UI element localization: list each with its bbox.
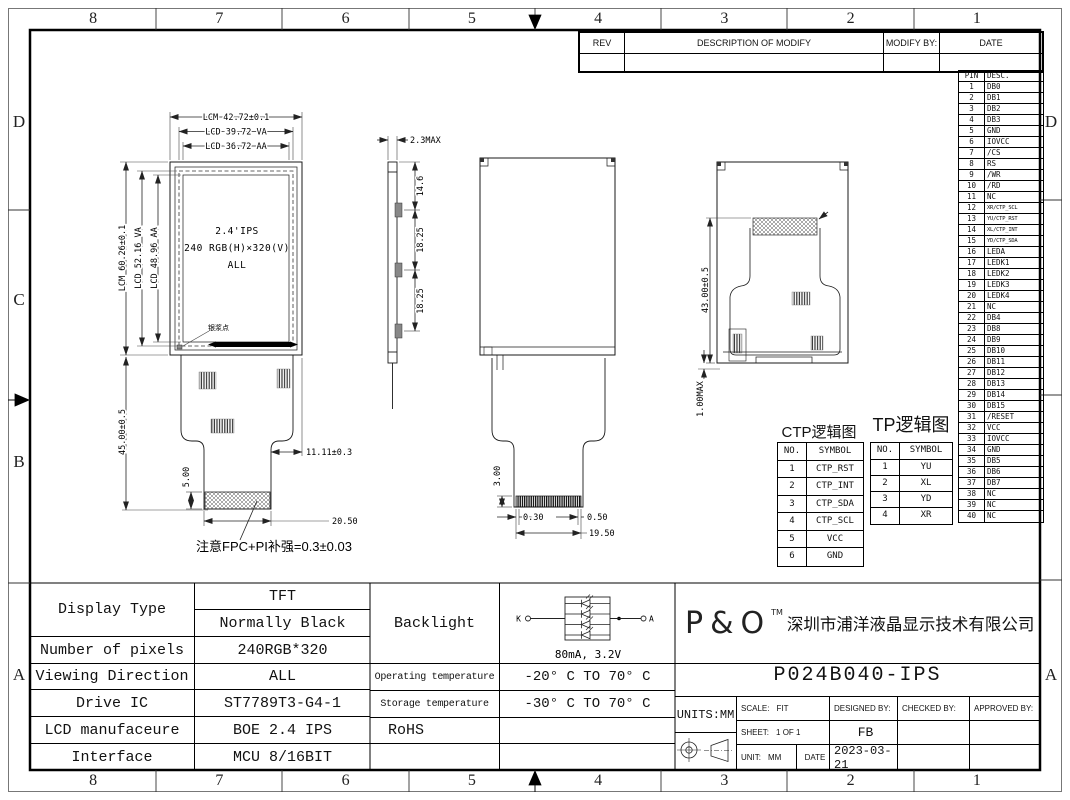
pin-number: 26 bbox=[959, 357, 985, 367]
ctp-no: 2 bbox=[778, 478, 807, 495]
backlight-circuit-cell bbox=[500, 583, 675, 664]
panel-size-label: 2.4'IPS bbox=[215, 226, 259, 237]
pin-row: 6 IOVCC bbox=[959, 137, 1043, 148]
tp-no-header: NO. bbox=[871, 443, 900, 459]
env-empty-label bbox=[370, 744, 500, 770]
pin-desc: GND bbox=[985, 445, 1043, 455]
pin-desc: LEDK1 bbox=[985, 258, 1043, 268]
component-5 bbox=[733, 334, 742, 353]
pin-number: 9 bbox=[959, 170, 985, 180]
pin-number: 20 bbox=[959, 291, 985, 301]
column-number: 2 bbox=[788, 770, 914, 792]
pin-row: 10 /RD bbox=[959, 181, 1043, 192]
pin-row: 31 /RESET bbox=[959, 412, 1043, 423]
column-band-top: 87654321 bbox=[30, 8, 1040, 30]
drive-ic-value: ST7789T3-G4-1 bbox=[195, 690, 370, 717]
manufacture-value: BOE 2.4 IPS bbox=[195, 717, 370, 744]
pin-number: 25 bbox=[959, 346, 985, 356]
engineering-drawing-sheet: { "sheet_border": { "columns": ["8","7",… bbox=[0, 0, 1070, 800]
pin-number: 19 bbox=[959, 280, 985, 290]
ctp-row: 3 CTP_SDA bbox=[778, 496, 863, 514]
manufacture-label: LCD manufaceure bbox=[30, 717, 195, 744]
pin-number: 30 bbox=[959, 401, 985, 411]
pin-desc: DB3 bbox=[985, 115, 1043, 125]
tp-symbol: XL bbox=[900, 476, 952, 491]
pin-row: 23 DB8 bbox=[959, 324, 1043, 335]
tp-no: 1 bbox=[871, 460, 900, 475]
dim-va-height: LCD 52.16 VA bbox=[134, 227, 144, 288]
pin-desc: LEDK2 bbox=[985, 269, 1043, 279]
env-empty-value bbox=[500, 744, 675, 770]
rohs-value-empty bbox=[500, 718, 675, 744]
pin-desc: YD/CTP_SDA bbox=[985, 236, 1043, 246]
column-number: 4 bbox=[535, 8, 661, 30]
modify-by-empty bbox=[884, 54, 940, 71]
pin-desc: IOVCC bbox=[985, 137, 1043, 147]
tp-header-row: NO. SYMBOL bbox=[871, 443, 952, 460]
pin-number: 34 bbox=[959, 445, 985, 455]
pin-desc: NC bbox=[985, 511, 1043, 522]
ctp-table-title: CTP逻辑图 bbox=[770, 421, 868, 442]
pin-desc: DB10 bbox=[985, 346, 1043, 356]
pin-row: 5 GND bbox=[959, 126, 1043, 137]
checked-by-cell: CHECKED BY: bbox=[898, 697, 970, 720]
dim-lcm-height: LCM 60.26±0.1 bbox=[118, 225, 128, 292]
side-view: 2.3MAX 14.6 18.25 18.25 bbox=[377, 136, 442, 409]
pin-desc: /RD bbox=[985, 181, 1043, 191]
date-empty bbox=[940, 54, 1042, 71]
dim-connector-width: 20.50 bbox=[332, 517, 358, 527]
units-label: UNITS:MM bbox=[675, 697, 736, 733]
pin-row: 32 VCC bbox=[959, 423, 1043, 434]
pin-row: 18 LEDK2 bbox=[959, 269, 1043, 280]
row-letter-d-left: D bbox=[8, 110, 30, 134]
tp-row: 4 XR bbox=[871, 508, 952, 524]
ctp-no: 5 bbox=[778, 531, 807, 548]
dim-lcm-width: LCM 42.72±0.1 bbox=[203, 113, 270, 123]
pin-desc: DB8 bbox=[985, 324, 1043, 334]
part-number: P024B040-IPS bbox=[675, 664, 1040, 697]
row-letter-a-right: A bbox=[1040, 663, 1062, 687]
revision-table: REV DESCRIPTION OF MODIFY MODIFY BY: DAT… bbox=[578, 31, 1044, 73]
pin-row: 21 NC bbox=[959, 302, 1043, 313]
pin-desc: NC bbox=[985, 489, 1043, 499]
dim-va-width: LCD 39.72 VA bbox=[205, 128, 266, 138]
dim-stiffener-height: 5.00 bbox=[182, 467, 192, 487]
pin-row: 12 XR/CTP_SCL bbox=[959, 203, 1043, 214]
pin-row: 14 XL/CTP_INT bbox=[959, 225, 1043, 236]
pin-row: 13 YU/CTP_RST bbox=[959, 214, 1043, 225]
dim-back-connector-width: 19.50 bbox=[589, 529, 615, 539]
ctp-symbol: CTP_INT bbox=[807, 478, 863, 495]
ctp-no: 3 bbox=[778, 496, 807, 513]
pin-row: 1 DB0 bbox=[959, 82, 1043, 93]
column-number: 5 bbox=[409, 8, 535, 30]
pin-desc: IOVCC bbox=[985, 434, 1043, 444]
pin-desc: NC bbox=[985, 500, 1043, 510]
pin-desc: YU/CTP_RST bbox=[985, 214, 1043, 224]
component-2 bbox=[211, 419, 234, 433]
pin-number: 23 bbox=[959, 324, 985, 334]
panel-resolution-label: 240 RGB(H)×320(V) bbox=[184, 243, 290, 254]
operating-value: -20° C TO 70° C bbox=[500, 664, 675, 691]
ctp-symbol: CTP_RST bbox=[807, 461, 863, 478]
pin-number: 40 bbox=[959, 511, 985, 522]
display-type-label: Display Type bbox=[30, 583, 195, 637]
description-empty bbox=[625, 54, 884, 71]
pin-row: 29 DB14 bbox=[959, 390, 1043, 401]
component-1 bbox=[199, 372, 216, 389]
pin-row: 35 DB5 bbox=[959, 456, 1043, 467]
company-row: P&OTM 深圳市浦洋液晶显示技术有限公司 bbox=[675, 583, 1040, 664]
pin-row: 8 RS bbox=[959, 159, 1043, 170]
dim-tail: 3.00 bbox=[493, 466, 503, 486]
drive-ic-label: Drive IC bbox=[30, 690, 195, 717]
pin-desc: DB13 bbox=[985, 379, 1043, 389]
column-number: 6 bbox=[283, 8, 409, 30]
pin-desc: /RESET bbox=[985, 412, 1043, 422]
pin-number: 35 bbox=[959, 456, 985, 466]
storage-value: -30° C TO 70° C bbox=[500, 691, 675, 718]
viewing-label: Viewing Direction bbox=[30, 664, 195, 690]
dim-side-top: 14.6 bbox=[416, 176, 426, 196]
pin-number: 8 bbox=[959, 159, 985, 169]
ctp-no: 6 bbox=[778, 548, 807, 566]
pin-number: 11 bbox=[959, 192, 985, 202]
rohs-label: RoHS bbox=[370, 718, 500, 744]
pin-row: 33 IOVCC bbox=[959, 434, 1043, 445]
silver-dot bbox=[177, 345, 182, 349]
tape-area bbox=[753, 218, 817, 235]
pin-desc: DB12 bbox=[985, 368, 1043, 378]
pin-desc: LEDK3 bbox=[985, 280, 1043, 290]
designer-name: FB bbox=[830, 721, 898, 744]
tp-table: NO. SYMBOL 1 YU 2 XL 3 YD 4 XR bbox=[870, 442, 953, 525]
approved-by-cell: APPROVED BY: bbox=[970, 697, 1040, 720]
pin-row: 22 DB4 bbox=[959, 313, 1043, 324]
ctp-row: 6 GND bbox=[778, 548, 863, 566]
pin-number: 37 bbox=[959, 478, 985, 488]
interface-label: Interface bbox=[30, 744, 195, 770]
pin-desc: DB6 bbox=[985, 467, 1043, 477]
rear-view: 43.00±0.5 1.00MAX bbox=[696, 162, 848, 417]
pin-number: 22 bbox=[959, 313, 985, 323]
dim-right-margin: 0.50 bbox=[587, 513, 607, 523]
pin-number: 13 bbox=[959, 214, 985, 224]
pin-row: 24 DB9 bbox=[959, 335, 1043, 346]
ctp-no: 1 bbox=[778, 461, 807, 478]
pin-row: 2 DB1 bbox=[959, 93, 1043, 104]
unit-cell: UNIT:MM bbox=[737, 745, 797, 770]
column-number: 3 bbox=[661, 8, 787, 30]
title-details-row: UNITS:MM SCALE:FIT DESIGNED BY: CHECKED … bbox=[675, 697, 1040, 770]
tp-symbol: YD bbox=[900, 492, 952, 507]
pin-number: 4 bbox=[959, 115, 985, 125]
pin-desc: DB4 bbox=[985, 313, 1043, 323]
title-block: P&OTM 深圳市浦洋液晶显示技术有限公司 P024B040-IPS UNITS… bbox=[675, 583, 1040, 770]
interface-value: MCU 8/16BIT bbox=[195, 744, 370, 770]
row-letter-a-left: A bbox=[8, 663, 30, 687]
pin-header: PIN bbox=[959, 71, 985, 81]
front-view: 2.4'IPS 240 RGB(H)×320(V) ALL 银浆点 bbox=[118, 112, 358, 554]
ctp-row: 5 VCC bbox=[778, 531, 863, 549]
pin-desc: DB9 bbox=[985, 335, 1043, 345]
silver-dot-label: 银浆点 bbox=[208, 323, 229, 332]
pin-table-header: PIN DESC. bbox=[959, 71, 1043, 82]
pin-table: PIN DESC. 1 DB0 2 DB1 3 DB2 4 DB3 5 GND … bbox=[958, 70, 1044, 523]
tp-no: 4 bbox=[871, 508, 900, 524]
scale-cell: SCALE:FIT bbox=[737, 697, 830, 720]
pin-row: 37 DB7 bbox=[959, 478, 1043, 489]
pin-number: 10 bbox=[959, 181, 985, 191]
tp-symbol: XR bbox=[900, 508, 952, 524]
dim-side-bottom: 18.25 bbox=[416, 288, 426, 314]
tp-table-title: TP逻辑图 bbox=[858, 411, 964, 437]
viewing-value: ALL bbox=[195, 664, 370, 690]
pin-number: 18 bbox=[959, 269, 985, 279]
pin-desc: XL/CTP_INT bbox=[985, 225, 1043, 235]
ctp-header-row: NO. SYMBOL bbox=[778, 443, 863, 461]
pin-row: 20 LEDK4 bbox=[959, 291, 1043, 302]
pin-number: 14 bbox=[959, 225, 985, 235]
component-6 bbox=[811, 336, 823, 350]
pin-row: 19 LEDK3 bbox=[959, 280, 1043, 291]
column-number: 3 bbox=[661, 770, 787, 792]
row-letter-c-left: C bbox=[8, 288, 30, 312]
units-cell: UNITS:MM bbox=[675, 697, 737, 770]
pin-row: 27 DB12 bbox=[959, 368, 1043, 379]
pin-row: 34 GND bbox=[959, 445, 1043, 456]
component-3 bbox=[277, 369, 290, 388]
pin-desc: DB2 bbox=[985, 104, 1043, 114]
pin-number: 28 bbox=[959, 379, 985, 389]
column-number: 2 bbox=[788, 8, 914, 30]
pin-row: 40 NC bbox=[959, 511, 1043, 522]
pin-number: 21 bbox=[959, 302, 985, 312]
display-type-value2: Normally Black bbox=[195, 610, 370, 637]
storage-label: Storage temperature bbox=[370, 691, 500, 718]
pin-number: 7 bbox=[959, 148, 985, 158]
trademark-mark: TM bbox=[771, 608, 783, 617]
pin-row: 15 YD/CTP_SDA bbox=[959, 236, 1043, 247]
pin-number: 27 bbox=[959, 368, 985, 378]
dim-fold: 1.00MAX bbox=[696, 380, 706, 417]
pin-row: 36 DB6 bbox=[959, 467, 1043, 478]
pin-number: 39 bbox=[959, 500, 985, 510]
pin-number: 17 bbox=[959, 258, 985, 268]
pin-desc: NC bbox=[985, 302, 1043, 312]
column-number: 7 bbox=[156, 8, 282, 30]
pin-row: 39 NC bbox=[959, 500, 1043, 511]
ctp-symbol: CTP_SDA bbox=[807, 496, 863, 513]
pin-row: 28 DB13 bbox=[959, 379, 1043, 390]
component-4 bbox=[792, 292, 810, 305]
ctp-no: 4 bbox=[778, 513, 807, 530]
date-header: DATE bbox=[940, 33, 1042, 54]
dim-fpc-length: 45.00±0.5 bbox=[118, 409, 128, 455]
pin-number: 6 bbox=[959, 137, 985, 147]
column-number: 8 bbox=[30, 770, 156, 792]
dim-rear-height: 43.00±0.5 bbox=[701, 267, 711, 313]
column-band-bottom: 87654321 bbox=[30, 770, 1040, 792]
pin-number: 3 bbox=[959, 104, 985, 114]
pin-desc: DB5 bbox=[985, 456, 1043, 466]
pin-row: 16 LEDA bbox=[959, 247, 1043, 258]
column-number: 4 bbox=[535, 770, 661, 792]
row-letter-b-left: B bbox=[8, 450, 30, 474]
display-type-value1: TFT bbox=[195, 583, 370, 610]
modify-by-header: MODIFY BY: bbox=[884, 33, 940, 54]
dim-left-margin: 0.30 bbox=[523, 513, 543, 523]
pin-number: 38 bbox=[959, 489, 985, 499]
date-empty1 bbox=[898, 745, 970, 770]
pixels-value: 240RGB*320 bbox=[195, 637, 370, 664]
pin-row: 38 NC bbox=[959, 489, 1043, 500]
column-number: 5 bbox=[409, 770, 535, 792]
dim-aa-width: LCD 36.72 AA bbox=[205, 142, 266, 152]
ctp-row: 4 CTP_SCL bbox=[778, 513, 863, 531]
tp-symbol: YU bbox=[900, 460, 952, 475]
dim-connector-inset: 11.11±0.3 bbox=[306, 448, 352, 458]
pin-desc: DB7 bbox=[985, 478, 1043, 488]
pin-row: 17 LEDK1 bbox=[959, 258, 1043, 269]
pin-row: 30 DB15 bbox=[959, 401, 1043, 412]
panel-viewing-label: ALL bbox=[228, 260, 247, 271]
pin-desc: /CS bbox=[985, 148, 1043, 158]
dim-thickness: 2.3MAX bbox=[410, 136, 442, 146]
pin-number: 29 bbox=[959, 390, 985, 400]
pin-number: 12 bbox=[959, 203, 985, 213]
pin-row: 11 NC bbox=[959, 192, 1043, 203]
ctp-no-header: NO. bbox=[778, 443, 807, 460]
pin-row: 9 /WR bbox=[959, 170, 1043, 181]
desc-header: DESC. bbox=[985, 71, 1043, 81]
pin-number: 15 bbox=[959, 236, 985, 246]
tp-symbol-header: SYMBOL bbox=[900, 443, 952, 459]
pin-number: 36 bbox=[959, 467, 985, 477]
date-label-cell: DATE bbox=[797, 745, 830, 770]
pin-desc: GND bbox=[985, 126, 1043, 136]
column-number: 7 bbox=[156, 770, 282, 792]
tp-no: 3 bbox=[871, 492, 900, 507]
pin-row: 7 /CS bbox=[959, 148, 1043, 159]
rev-header: REV bbox=[580, 33, 625, 54]
title-grid: SCALE:FIT DESIGNED BY: CHECKED BY: APPRO… bbox=[737, 697, 1040, 770]
pin-desc: DB15 bbox=[985, 401, 1043, 411]
column-number: 8 bbox=[30, 8, 156, 30]
backlight-label: Backlight bbox=[370, 583, 500, 664]
pin-desc: VCC bbox=[985, 423, 1043, 433]
tp-no: 2 bbox=[871, 476, 900, 491]
company-logo: P&OTM bbox=[685, 606, 783, 641]
pin-number: 1 bbox=[959, 82, 985, 92]
spec-table: Display Type TFT Normally Black Number o… bbox=[30, 583, 370, 770]
fpc-note: 注意FPC+PI补强=0.3±0.03 bbox=[196, 539, 352, 554]
operating-label: Operating temperature bbox=[370, 664, 500, 691]
fpc-connector-back bbox=[516, 496, 581, 507]
tp-row: 2 XL bbox=[871, 476, 952, 492]
tp-row: 3 YD bbox=[871, 492, 952, 508]
pin-number: 5 bbox=[959, 126, 985, 136]
checked-by-value bbox=[898, 721, 970, 744]
lcd-contact-bar bbox=[208, 342, 298, 348]
pin-number: 16 bbox=[959, 247, 985, 257]
pin-desc: /WR bbox=[985, 170, 1043, 180]
pin-desc: LEDK4 bbox=[985, 291, 1043, 301]
ctp-symbol: CTP_SCL bbox=[807, 513, 863, 530]
pixels-label: Number of pixels bbox=[30, 637, 195, 664]
designed-by-cell: DESIGNED BY: bbox=[830, 697, 898, 720]
rev-empty bbox=[580, 54, 625, 71]
ctp-symbol-header: SYMBOL bbox=[807, 443, 863, 460]
pin-row: 26 DB11 bbox=[959, 357, 1043, 368]
pin-desc: NC bbox=[985, 192, 1043, 202]
dim-side-mid: 18.25 bbox=[416, 227, 426, 253]
description-header: DESCRIPTION OF MODIFY bbox=[625, 33, 884, 54]
pin-desc: RS bbox=[985, 159, 1043, 169]
date-value: 2023-03-21 bbox=[830, 745, 898, 770]
pin-row: 25 DB10 bbox=[959, 346, 1043, 357]
pin-row: 4 DB3 bbox=[959, 115, 1043, 126]
pin-number: 24 bbox=[959, 335, 985, 345]
column-number: 6 bbox=[283, 770, 409, 792]
pin-desc: DB11 bbox=[985, 357, 1043, 367]
pin-row: 3 DB2 bbox=[959, 104, 1043, 115]
pin-number: 2 bbox=[959, 93, 985, 103]
ctp-row: 1 CTP_RST bbox=[778, 461, 863, 479]
pin-desc: DB1 bbox=[985, 93, 1043, 103]
back-view: 3.00 0.30 0.50 19.50 bbox=[480, 158, 615, 539]
pin-desc: DB14 bbox=[985, 390, 1043, 400]
tp-row: 1 YU bbox=[871, 460, 952, 476]
pin-desc: XR/CTP_SCL bbox=[985, 203, 1043, 213]
ctp-symbol: GND bbox=[807, 548, 863, 566]
env-table: Backlight Operating temperature -20° C T… bbox=[370, 583, 675, 770]
column-number: 1 bbox=[914, 8, 1040, 30]
pin-desc: LEDA bbox=[985, 247, 1043, 257]
ctp-table: NO. SYMBOL 1 CTP_RST 2 CTP_INT 3 CTP_SDA… bbox=[777, 442, 864, 567]
date-empty2 bbox=[970, 745, 1040, 770]
dim-aa-height: LCD 48.96 AA bbox=[150, 227, 160, 288]
ctp-symbol: VCC bbox=[807, 531, 863, 548]
approved-by-value bbox=[970, 721, 1040, 744]
pin-desc: DB0 bbox=[985, 82, 1043, 92]
column-number: 1 bbox=[914, 770, 1040, 792]
ctp-row: 2 CTP_INT bbox=[778, 478, 863, 496]
fpc-connector-front bbox=[205, 492, 270, 509]
sheet-cell: SHEET:1 OF 1 bbox=[737, 721, 830, 744]
company-name: 深圳市浦洋液晶显示技术有限公司 bbox=[787, 611, 1035, 635]
